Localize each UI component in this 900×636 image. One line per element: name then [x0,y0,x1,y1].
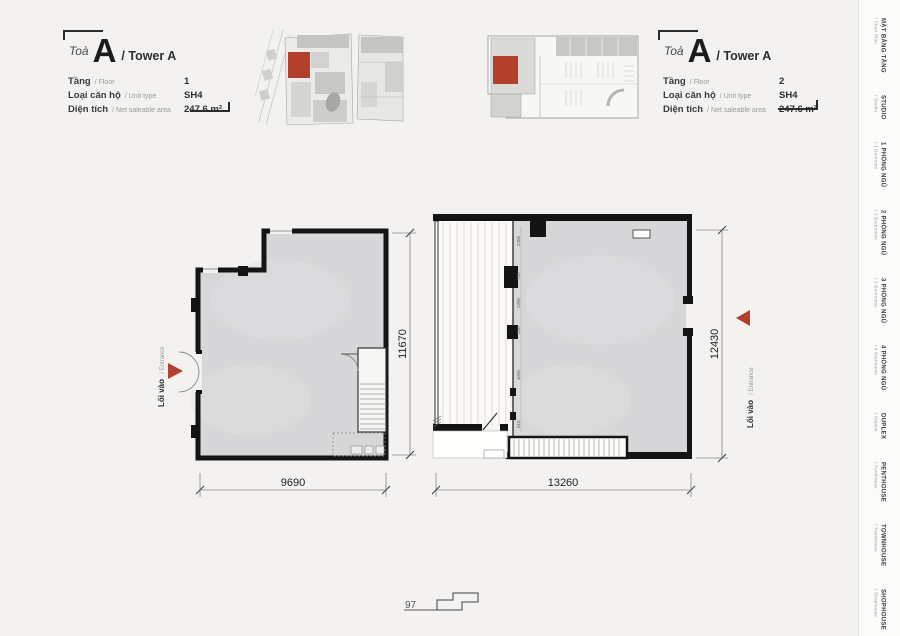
tower-letter: A [688,36,711,66]
sidebar-item-shophouse[interactable]: SHOPHOUSE / Shophouse [874,589,886,630]
page-number: 97 [405,600,417,611]
floor-sublabel: / Floor [690,79,710,86]
page-footer: 97 [395,582,495,616]
entrance-label: Lối vào / Entrance [746,367,755,428]
svg-text:810: 810 [516,420,521,428]
svg-text:2300: 2300 [516,297,521,308]
svg-text:2300: 2300 [516,235,521,246]
dim-width-value: 13260 [548,477,579,489]
floor-value: 2 [779,76,831,87]
unit-info-floor2: Toà A / Tower A Tầng / Floor 2 Loại căn … [658,30,833,115]
site-map-floor2 [478,22,645,127]
void-strip [436,221,513,428]
svg-text:200: 200 [516,326,521,334]
tower-name: / Tower A [716,49,771,63]
sidebar-item-floor-plan[interactable]: MẶT BẰNG TẦNG / Floor Plan [874,18,886,73]
entrance-arrow-icon [168,363,183,379]
unit-type-label: Loại căn hộ [68,90,121,101]
dim-width-value: 9690 [281,477,305,489]
svg-text:Lối vào / Entrance: Lối vào / Entrance [157,346,166,407]
corner-bracket-icon [778,100,818,110]
floor-label: Tầng [663,76,686,87]
toa-label: Toà [664,44,684,58]
tower-letter: A [93,36,116,66]
unit-type-value: SH4 [184,90,236,101]
sidebar-item-townhouse[interactable]: TOWNHOUSE / Townhouse [874,524,886,566]
floor-plan-1-drawing: Lối vào / Entrance 9690 11670 [150,205,430,520]
sidebar-item-4-bedrooms[interactable]: 4 PHÒNG NGỦ / 4 Bedrooms [874,345,886,390]
dim-height-value: 11670 [397,329,409,359]
floor-row: Tầng / Floor 1 [68,76,236,90]
entrance-label: Lối vào / Entrance [157,346,166,407]
unit-type-label: Loại căn hộ [663,90,716,101]
floor-label: Tầng [68,76,91,87]
entrance-arrow-icon [736,310,750,326]
footer-graphic: 97 [395,582,495,616]
outer-walls [433,214,692,221]
section-sidebar: MẶT BẰNG TẦNG / Floor Plan STUDIO / Stud… [858,0,900,636]
svg-text:700: 700 [516,272,521,280]
dim-height-value: 12430 [709,329,721,360]
sidebar-item-duplex[interactable]: DUPLEX / Duplex [874,413,886,439]
site-map-floor1 [255,22,405,127]
floor-row: Tầng / Floor 2 [663,76,831,90]
sidebar-item-3-bedrooms[interactable]: 3 PHÒNG NGỦ / 3 Bedrooms [874,278,886,323]
floor-sublabel: / Floor [95,79,115,86]
corner-bracket-icon [190,102,230,112]
sidebar-item-1-bedroom[interactable]: 1 PHÒNG NGỦ / 1 Bedroom [874,142,886,187]
floor-plan-2-drawing: 2300 700 2300 200 4000 810 [432,205,762,520]
brochure-page: Toà A / Tower A Tầng / Floor 1 Loại căn … [0,0,900,636]
step-logo-icon [437,593,478,610]
stairs [509,437,627,458]
unit-info-floor1: Toà A / Tower A Tầng / Floor 1 Loại căn … [63,30,238,115]
floor-value: 1 [184,76,236,87]
area-label: Diện tích [68,104,108,115]
unit-type-sublabel: / Unit type [720,93,752,100]
tower-name: / Tower A [121,49,176,63]
svg-text:4000: 4000 [516,369,521,380]
area-sublabel: / Net saleable area [112,107,171,114]
area-label: Diện tích [663,104,703,115]
sidebar-item-penthouse[interactable]: PENTHOUSE / Penthouse [874,462,886,502]
highlighted-unit-marker [493,56,518,84]
highlighted-unit-marker [288,52,310,78]
sidebar-item-2-bedrooms[interactable]: 2 PHÒNG NGỦ / 2 Bedrooms [874,210,886,255]
unit-type-sublabel: / Unit type [125,93,157,100]
entrance-door [179,350,202,394]
unit-title: Toà A / Tower A [664,36,771,66]
area-sublabel: / Net saleable area [707,107,766,114]
toa-label: Toà [69,44,89,58]
sidebar-item-studio[interactable]: STUDIO / Studio [874,95,886,119]
svg-text:Lối vào / Entrance: Lối vào / Entrance [746,367,755,428]
unit-title: Toà A / Tower A [69,36,176,66]
